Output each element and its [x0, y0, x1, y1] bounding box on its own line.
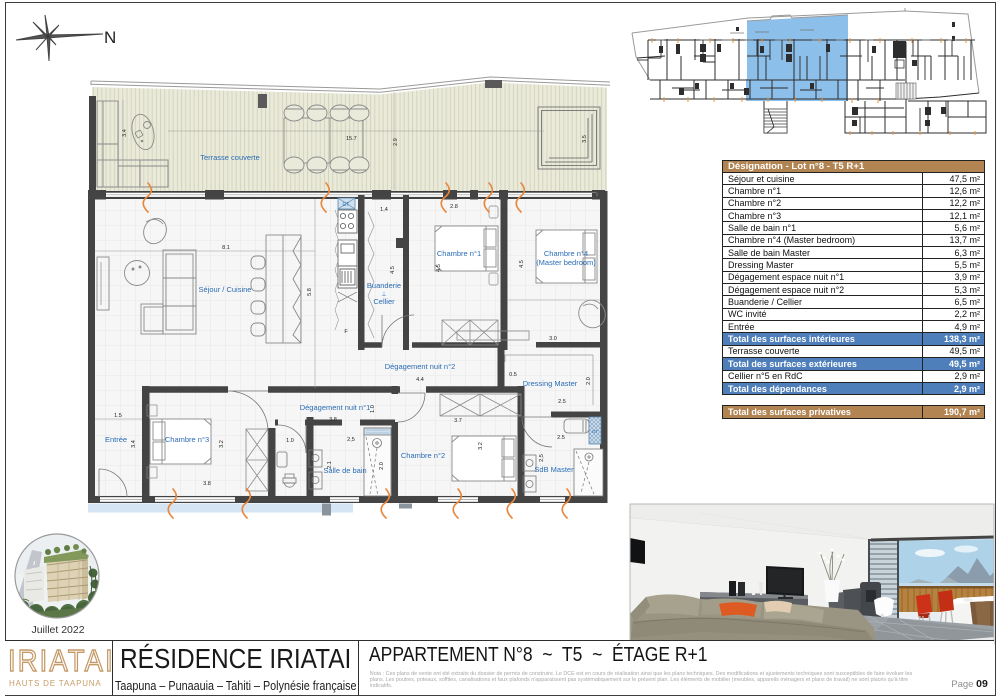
svg-text:Chambre n°4: Chambre n°4	[544, 249, 588, 258]
svg-text:3.8: 3.8	[203, 481, 211, 487]
svg-text:Dégagement nuit n°2: Dégagement nuit n°2	[385, 362, 456, 371]
svg-text:1.0: 1.0	[286, 438, 294, 444]
svg-text:2,5: 2,5	[347, 437, 355, 443]
svg-text:Chambre n°1: Chambre n°1	[437, 249, 481, 258]
svg-text:2.8: 2.8	[450, 204, 458, 210]
svg-text:3.8: 3.8	[329, 417, 337, 423]
svg-text:SdB Master: SdB Master	[534, 465, 574, 474]
svg-text:Séjour / Cuisine: Séjour / Cuisine	[199, 285, 252, 294]
svg-text:Entrée: Entrée	[105, 435, 127, 444]
svg-text:15.7: 15.7	[346, 136, 357, 142]
svg-text:1,4: 1,4	[380, 207, 388, 213]
svg-text:1.0: 1.0	[370, 405, 376, 413]
svg-text:Dressing Master: Dressing Master	[523, 379, 578, 388]
svg-text:4.4: 4.4	[416, 377, 424, 383]
svg-text:2.5: 2.5	[557, 435, 565, 441]
svg-text:3.2: 3.2	[219, 440, 225, 448]
svg-text:Terrasse couverte: Terrasse couverte	[200, 153, 260, 162]
svg-text:Dégagement nuit n°1: Dégagement nuit n°1	[300, 403, 371, 412]
svg-text:2,5: 2,5	[539, 454, 545, 462]
svg-text:Cellier: Cellier	[373, 297, 395, 306]
svg-text:4.5: 4.5	[519, 260, 525, 268]
svg-text:5.8: 5.8	[307, 288, 313, 296]
svg-text:3.5: 3.5	[582, 135, 588, 143]
svg-text:3.4: 3.4	[131, 440, 137, 448]
svg-text:0.5: 0.5	[509, 372, 517, 378]
svg-text:3.7: 3.7	[454, 418, 462, 424]
svg-text:(Master bedroom): (Master bedroom)	[536, 258, 596, 267]
svg-text:2.5: 2.5	[558, 399, 566, 405]
svg-text:4.5: 4.5	[436, 264, 442, 272]
svg-text:2.0: 2.0	[586, 377, 592, 385]
svg-text:N: N	[104, 28, 116, 47]
svg-text:4.5: 4.5	[390, 266, 396, 274]
svg-text:GT: GT	[343, 202, 350, 208]
svg-text:2.0: 2.0	[379, 462, 385, 470]
svg-text:Chambre n°2: Chambre n°2	[401, 451, 445, 460]
svg-text:Chambre n°3: Chambre n°3	[165, 435, 209, 444]
svg-text:8.1: 8.1	[222, 245, 230, 251]
svg-text:GT: GT	[592, 429, 599, 434]
svg-text:3.2: 3.2	[478, 442, 484, 450]
svg-text:3.0: 3.0	[549, 336, 557, 342]
svg-text:2.1: 2.1	[327, 461, 333, 469]
svg-text:1.5: 1.5	[114, 413, 122, 419]
svg-text:Buanderie: Buanderie	[367, 281, 401, 290]
